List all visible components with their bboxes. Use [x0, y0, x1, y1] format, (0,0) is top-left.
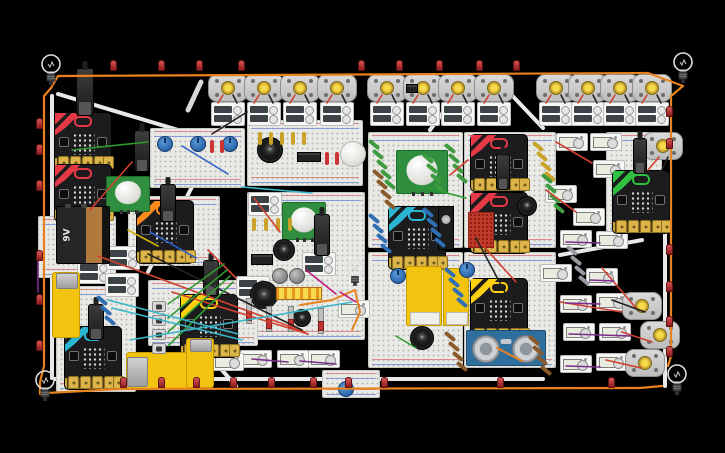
red-led[interactable]: [666, 281, 673, 292]
light-bulb[interactable]: [670, 50, 696, 88]
wire[interactable]: [660, 157, 668, 174]
wire[interactable]: [392, 95, 396, 103]
red-led[interactable]: [436, 60, 443, 71]
wire[interactable]: [497, 348, 522, 361]
red-led[interactable]: [196, 60, 203, 71]
red-led[interactable]: [36, 144, 43, 155]
red-led[interactable]: [230, 377, 237, 388]
wire[interactable]: [610, 95, 615, 103]
wire[interactable]: [306, 270, 336, 294]
wire[interactable]: [556, 142, 592, 163]
red-led[interactable]: [666, 316, 673, 327]
light-bulb[interactable]: [32, 368, 58, 406]
wire[interactable]: [242, 187, 312, 193]
wire[interactable]: [300, 361, 336, 364]
wire[interactable]: [90, 162, 132, 210]
red-led[interactable]: [36, 118, 43, 129]
wire[interactable]: [305, 95, 309, 103]
light-bulb[interactable]: [344, 258, 366, 290]
wire[interactable]: [566, 303, 600, 304]
wire[interactable]: [606, 360, 641, 368]
light-bulb[interactable]: [38, 52, 64, 90]
light-bulb-glyph: [38, 52, 64, 90]
wire[interactable]: [233, 95, 237, 103]
red-led[interactable]: [396, 60, 403, 71]
wire[interactable]: [546, 95, 551, 103]
wire[interactable]: [413, 95, 418, 103]
red-led[interactable]: [36, 180, 43, 191]
wire[interactable]: [593, 95, 597, 103]
wire[interactable]: [499, 95, 503, 103]
wire[interactable]: [396, 336, 416, 348]
red-led[interactable]: [666, 106, 673, 117]
wire[interactable]: [290, 95, 295, 103]
light-bulb-glyph: [32, 368, 58, 406]
red-led[interactable]: [158, 377, 165, 388]
wire[interactable]: [182, 146, 228, 174]
wire[interactable]: [148, 254, 302, 330]
wire[interactable]: [648, 157, 659, 170]
wire[interactable]: [622, 332, 652, 342]
wire[interactable]: [377, 95, 382, 103]
wire[interactable]: [72, 142, 148, 150]
wire[interactable]: [561, 95, 565, 103]
red-led[interactable]: [110, 60, 117, 71]
wire[interactable]: [327, 95, 332, 103]
wire[interactable]: [428, 188, 466, 198]
red-led[interactable]: [310, 377, 317, 388]
red-led[interactable]: [120, 377, 127, 388]
wire[interactable]: [254, 198, 280, 232]
wire[interactable]: [657, 95, 661, 103]
light-bulb-glyph: [664, 362, 690, 400]
wire[interactable]: [98, 256, 305, 332]
red-led[interactable]: [381, 377, 388, 388]
wire[interactable]: [254, 95, 259, 103]
red-led[interactable]: [666, 244, 673, 255]
wire[interactable]: [612, 300, 645, 312]
wire[interactable]: [569, 334, 631, 336]
wire[interactable]: [108, 300, 238, 334]
red-led[interactable]: [608, 377, 615, 388]
wire[interactable]: [47, 386, 662, 393]
red-led[interactable]: [36, 294, 43, 305]
wire[interactable]: [642, 95, 647, 103]
wire[interactable]: [428, 95, 432, 103]
wire[interactable]: [352, 290, 360, 330]
circuit-canvas: 9V: [0, 0, 725, 453]
red-led[interactable]: [36, 250, 43, 261]
wire[interactable]: [51, 73, 683, 88]
wire[interactable]: [566, 242, 600, 243]
red-led[interactable]: [497, 377, 504, 388]
light-bulb-glyph: [670, 50, 696, 88]
wire[interactable]: [212, 112, 247, 134]
red-led[interactable]: [666, 346, 673, 357]
wire[interactable]: [590, 280, 614, 281]
red-led[interactable]: [238, 60, 245, 71]
wire[interactable]: [566, 366, 600, 367]
red-led[interactable]: [476, 60, 483, 71]
light-bulb-glyph: [344, 258, 366, 290]
red-led[interactable]: [268, 377, 275, 388]
wire[interactable]: [463, 95, 467, 103]
wire[interactable]: [546, 190, 576, 212]
red-led[interactable]: [36, 340, 43, 351]
wire[interactable]: [342, 95, 346, 103]
red-led[interactable]: [158, 60, 165, 71]
wire[interactable]: [448, 95, 453, 103]
red-led[interactable]: [666, 138, 673, 149]
light-bulb[interactable]: [664, 362, 690, 400]
wire[interactable]: [625, 95, 629, 103]
red-led[interactable]: [345, 377, 352, 388]
red-led[interactable]: [193, 377, 200, 388]
wire[interactable]: [484, 95, 489, 103]
wire[interactable]: [218, 95, 223, 103]
red-led[interactable]: [513, 60, 520, 71]
wire[interactable]: [269, 95, 273, 103]
wire[interactable]: [450, 160, 468, 175]
wire[interactable]: [252, 359, 288, 362]
wire[interactable]: [128, 230, 158, 246]
red-led[interactable]: [358, 60, 365, 71]
wire[interactable]: [578, 95, 583, 103]
